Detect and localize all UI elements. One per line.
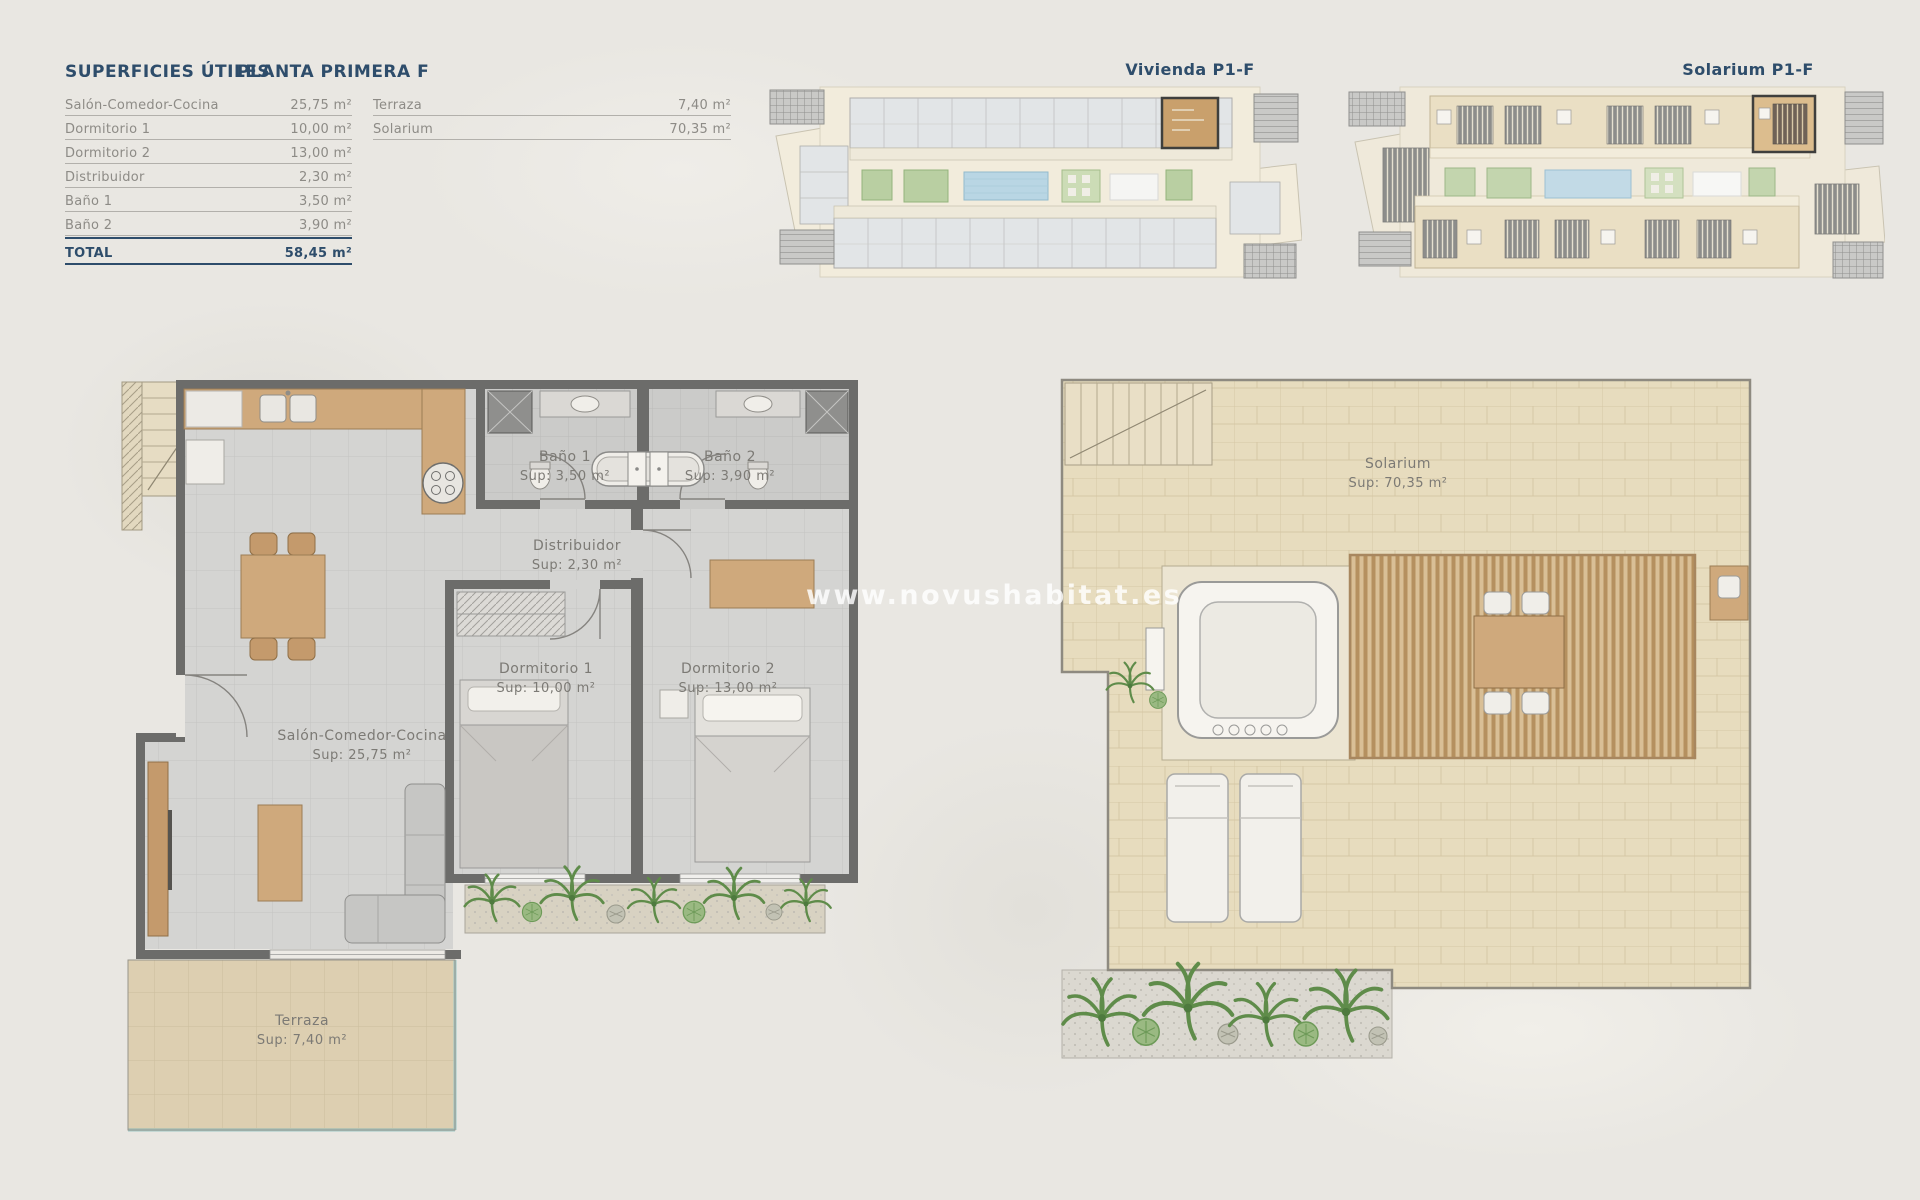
chair: [1484, 592, 1511, 614]
room-label-bano2: Baño 2 Sup: 3,90 m²: [685, 448, 775, 486]
lounger: [1240, 774, 1301, 922]
table-row: Dormitorio 1 10,00 m²: [65, 116, 352, 140]
building-row-bottom: [834, 218, 1216, 268]
pergola-block: [1555, 220, 1589, 258]
plan-subtitle: PLANTA PRIMERA F: [237, 62, 429, 82]
row-value: 13,00 m²: [290, 146, 352, 161]
total-value: 58,45 m²: [285, 246, 352, 261]
jacuzzi-mini: [1705, 110, 1719, 124]
garden-patch: [862, 170, 892, 200]
balcony-strip: [850, 148, 1232, 160]
solarium-overview-label: Solarium P1-F: [1682, 60, 1813, 79]
total-label: TOTAL: [65, 246, 113, 261]
pergola-block: [1655, 106, 1691, 144]
chair: [1522, 692, 1549, 714]
stair-block: [1359, 232, 1411, 266]
jacuzzi-mini: [1557, 110, 1571, 124]
chair: [1522, 592, 1549, 614]
table-row: Baño 1 3,50 m²: [65, 188, 352, 212]
row-label: Solarium: [373, 122, 433, 137]
highlighted-unit: [1162, 98, 1218, 148]
sink: [744, 396, 772, 412]
apartment-floor-plan: [120, 380, 870, 1140]
pillow: [703, 695, 802, 721]
garden-patch: [1749, 168, 1775, 196]
pergola-block: [1607, 106, 1643, 144]
floor-plan-sheet: SUPERFICIES ÚTILES PLANTA PRIMERA F Saló…: [0, 0, 1920, 1200]
jacuzzi-mini: [1601, 230, 1615, 244]
stair-block: [1845, 92, 1883, 144]
chair: [288, 533, 315, 555]
jacuzzi-mini: [1467, 230, 1481, 244]
solarium-overview-plan: [1345, 84, 1885, 284]
row-value: 25,75 m²: [290, 98, 352, 113]
bedroom1-furniture: [457, 592, 568, 868]
pergola: [1350, 555, 1695, 758]
outdoor-table: [1474, 616, 1564, 688]
cooktop: [423, 463, 463, 503]
jacuzzi-step: [1146, 628, 1164, 690]
chair: [288, 638, 315, 660]
sofa-chaise: [345, 895, 445, 943]
white-pool: [1693, 172, 1741, 196]
table-row: Baño 2 3,90 m²: [65, 212, 352, 236]
row-label: Dormitorio 1: [65, 122, 150, 137]
table-row: Solarium 70,35 m²: [373, 116, 731, 140]
room-label-solarium: Solarium Sup: 70,35 m²: [1349, 455, 1448, 493]
watermark: www.novushabitat.es: [806, 580, 1182, 611]
pergola-block: [1505, 220, 1539, 258]
row-value: 7,40 m²: [678, 98, 731, 113]
pool: [1545, 170, 1631, 198]
jacuzzi-mini: [1437, 110, 1451, 124]
row-label: Baño 2: [65, 218, 112, 233]
fridge: [186, 440, 224, 484]
jacuzzi-mini: [1743, 230, 1757, 244]
table-row: Salón-Comedor-Cocina 25,75 m²: [65, 92, 352, 116]
wing-unit: [1230, 182, 1280, 234]
tv: [168, 810, 172, 890]
row-value: 70,35 m²: [669, 122, 731, 137]
table-row: Terraza 7,40 m²: [373, 92, 731, 116]
room-label-salon: Salón-Comedor-Cocina Sup: 25,75 m²: [277, 727, 446, 765]
blanket: [460, 725, 568, 868]
garden-patch: [1166, 170, 1192, 200]
room-label-dormitorio2: Dormitorio 2 Sup: 13,00 m²: [679, 660, 778, 698]
stair-block: [1254, 94, 1298, 142]
row-value: 2,30 m²: [299, 170, 352, 185]
parking-block: [1833, 242, 1883, 278]
kitchen-appliance: [186, 391, 242, 427]
garden-patch: [1445, 168, 1475, 196]
blanket: [695, 736, 810, 862]
garden-pavilion: [1062, 170, 1100, 202]
garden-patch: [904, 170, 948, 202]
table-row: Dormitorio 2 13,00 m²: [65, 140, 352, 164]
parking-block: [770, 90, 824, 124]
sink-bowl: [260, 395, 286, 422]
room-label-distribuidor: Distribuidor Sup: 2,30 m²: [532, 537, 622, 575]
dining-table: [241, 555, 325, 638]
parking-block: [1349, 92, 1405, 126]
garden-pavilion: [1645, 168, 1683, 198]
hatch-strip: [122, 382, 142, 530]
surfaces-table-main: Salón-Comedor-Cocina 25,75 m² Dormitorio…: [65, 92, 352, 265]
dresser: [710, 560, 814, 608]
wing-solarium: [1815, 184, 1859, 234]
row-label: Distribuidor: [65, 170, 145, 185]
chair: [250, 533, 277, 555]
balcony-strip: [834, 206, 1216, 218]
row-value: 10,00 m²: [290, 122, 352, 137]
coffee-table: [258, 805, 302, 901]
sink: [571, 396, 599, 412]
pergola-block: [1457, 106, 1493, 144]
sink-bowl: [290, 395, 316, 422]
tv-cabinet: [148, 762, 168, 936]
row-label: Salón-Comedor-Cocina: [65, 98, 219, 113]
table-total-row: TOTAL 58,45 m²: [65, 237, 352, 265]
surfaces-table-extra: Terraza 7,40 m² Solarium 70,35 m²: [373, 92, 731, 140]
white-pool: [1110, 174, 1158, 200]
lounger: [1167, 774, 1228, 922]
pergola-block: [1423, 220, 1457, 258]
row-value: 3,90 m²: [299, 218, 352, 233]
stair-block: [780, 230, 834, 264]
table-row: Distribuidor 2,30 m²: [65, 164, 352, 188]
garden-patch: [1487, 168, 1531, 198]
pergola-block: [1697, 220, 1731, 258]
room-label-terraza: Terraza Sup: 7,40 m²: [257, 1012, 347, 1050]
room-label-dormitorio1: Dormitorio 1 Sup: 10,00 m²: [497, 660, 596, 698]
chair: [1484, 692, 1511, 714]
vivienda-overview-label: Vivienda P1-F: [1125, 60, 1254, 79]
parking-block: [1244, 244, 1296, 278]
row-label: Dormitorio 2: [65, 146, 150, 161]
row-label: Terraza: [373, 98, 422, 113]
chair: [250, 638, 277, 660]
room-label-bano1: Baño 1 Sup: 3,50 m²: [520, 448, 610, 486]
pergola-block: [1645, 220, 1679, 258]
row-value: 3,50 m²: [299, 194, 352, 209]
pergola-block: [1505, 106, 1541, 144]
vivienda-overview-plan: [762, 84, 1302, 284]
row-label: Baño 1: [65, 194, 112, 209]
